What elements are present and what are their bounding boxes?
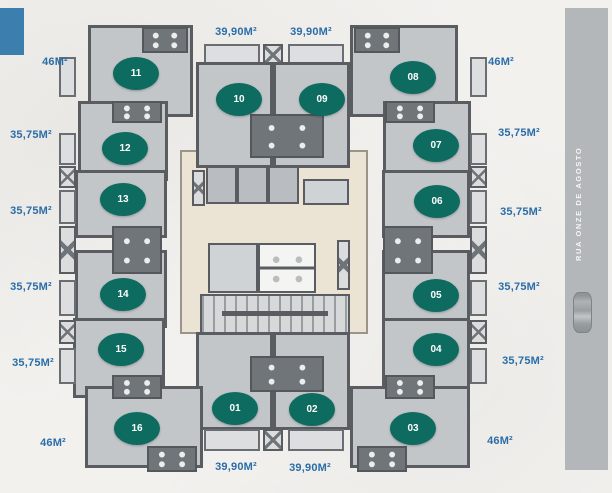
unit-marker-15[interactable]: 15 bbox=[98, 333, 144, 366]
unit-marker-12[interactable]: 12 bbox=[102, 132, 148, 165]
area-label: 35,75M² bbox=[498, 127, 540, 139]
unit-marker-03[interactable]: 03 bbox=[390, 412, 436, 445]
area-label: 35,75M² bbox=[12, 357, 54, 369]
area-label: 39,90M² bbox=[215, 461, 257, 473]
markers-layer: 0102030405060708091011121314151646M²39,9… bbox=[0, 0, 612, 493]
area-label: 35,75M² bbox=[10, 281, 52, 293]
unit-marker-04[interactable]: 04 bbox=[413, 333, 459, 366]
area-label: 35,75M² bbox=[500, 206, 542, 218]
unit-marker-01[interactable]: 01 bbox=[212, 392, 258, 425]
area-label: 39,90M² bbox=[290, 26, 332, 38]
area-label: 35,75M² bbox=[502, 355, 544, 367]
floor-plan: RUA ONZE DE AGOSTO bbox=[0, 0, 612, 493]
unit-marker-13[interactable]: 13 bbox=[100, 183, 146, 216]
area-label: 46M² bbox=[488, 56, 514, 68]
unit-marker-05[interactable]: 05 bbox=[413, 279, 459, 312]
unit-marker-11[interactable]: 11 bbox=[113, 57, 159, 90]
area-label: 39,90M² bbox=[289, 462, 331, 474]
area-label: 39,90M² bbox=[215, 26, 257, 38]
area-label: 46M² bbox=[40, 437, 66, 449]
area-label: 46M² bbox=[42, 56, 68, 68]
area-label: 35,75M² bbox=[10, 205, 52, 217]
area-label: 46M² bbox=[487, 435, 513, 447]
area-label: 35,75M² bbox=[10, 129, 52, 141]
area-label: 35,75M² bbox=[498, 281, 540, 293]
unit-marker-07[interactable]: 07 bbox=[413, 129, 459, 162]
unit-marker-02[interactable]: 02 bbox=[289, 393, 335, 426]
unit-marker-09[interactable]: 09 bbox=[299, 83, 345, 116]
unit-marker-16[interactable]: 16 bbox=[114, 412, 160, 445]
unit-marker-14[interactable]: 14 bbox=[100, 278, 146, 311]
unit-marker-06[interactable]: 06 bbox=[414, 185, 460, 218]
unit-marker-10[interactable]: 10 bbox=[216, 83, 262, 116]
unit-marker-08[interactable]: 08 bbox=[390, 61, 436, 94]
